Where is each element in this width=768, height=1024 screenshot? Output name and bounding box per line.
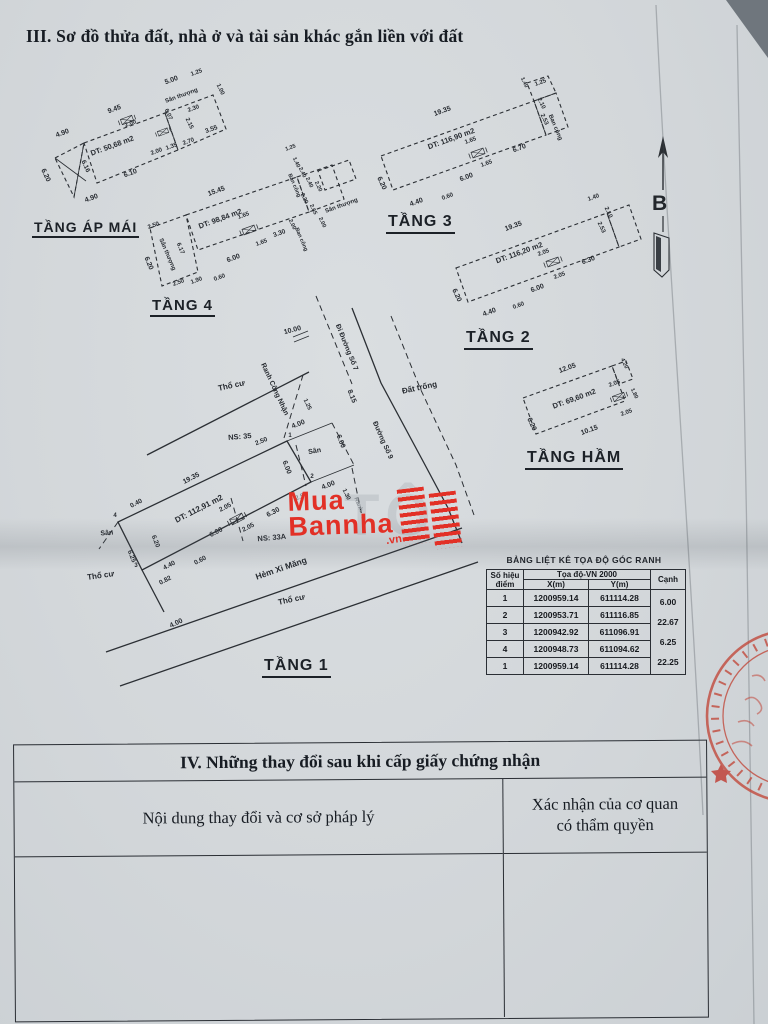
drawing-label: 6.00	[459, 172, 474, 183]
drawing-label: Thổ cư	[277, 592, 306, 606]
drawing-label: 0.60	[512, 301, 526, 311]
col-header-edge: Cạnh	[651, 570, 686, 590]
drawing-label: 0.60	[193, 554, 208, 566]
drawing-label: 2.15	[184, 117, 195, 131]
drawing-label: 0.60	[441, 192, 455, 202]
drawing-label: 5.00	[164, 75, 179, 86]
drawing-label: NS: 33A	[257, 532, 287, 544]
col-header-point: Số hiệu điểm	[487, 570, 524, 590]
drawing-label: 2.40	[304, 176, 314, 188]
drawing-label: 6.30	[266, 506, 281, 518]
coordinate-table-title: BẢNG LIỆT KÊ TỌA ĐỘ GÓC RANH	[484, 555, 684, 565]
drawing-label: 4.90	[84, 193, 99, 204]
drawing-label: 0.60	[213, 273, 227, 283]
drawing-label: 6.00	[226, 253, 241, 264]
drawing-label: 1.00	[215, 83, 226, 97]
drawing-label: 2.05	[608, 379, 622, 389]
drawing-label: 3.30	[272, 228, 287, 239]
drawing-label: Sân	[308, 447, 322, 456]
col-header-y: Y(m)	[589, 580, 651, 590]
drawing-label: 2.05	[620, 408, 634, 418]
drawing-label: Thổ cư	[217, 378, 246, 392]
drawing-label: 2.05	[241, 521, 256, 533]
drawing-label: 6.20	[150, 534, 161, 549]
coord-row: 11200959.14611114.286.0022.676.2522.25	[487, 590, 686, 607]
drawing-label: 2	[310, 474, 314, 480]
drawing-label: 1.80	[629, 387, 639, 399]
drawing-label: 6.00	[530, 283, 545, 294]
section-iv-table: IV. Những thay đổi sau khi cấp giấy chứn…	[13, 740, 709, 1023]
scanned-land-certificate-page: III. Sơ đồ thửa đất, nhà ở và tài sản kh…	[0, 0, 768, 1024]
section-iv-col-confirm: Xác nhận của cơ quan có thẩm quyền	[503, 778, 707, 854]
drawing-label: 12.05	[558, 362, 577, 375]
drawing-label: 2.00	[150, 147, 164, 157]
drawing-label: 2.50	[172, 278, 186, 288]
drawing-label: 4.00	[291, 419, 306, 431]
drawing-label: 6.30	[581, 255, 596, 266]
drawing-label: Sân	[100, 529, 113, 537]
drawing-label: 6.17	[175, 242, 185, 256]
edge-values-cell: 6.0022.676.2522.25	[651, 590, 686, 675]
drawing-label: 6.00	[335, 434, 347, 449]
drawing-label: 1.65	[255, 238, 269, 248]
drawing-label: Đất trống	[401, 379, 438, 395]
drawing-label: 6.20	[375, 176, 387, 191]
drawing-label: NS: 35	[228, 431, 252, 442]
drawing-label: Ban công	[293, 227, 308, 252]
drawing-label: Ban công	[547, 114, 563, 142]
drawing-label: 0.82	[158, 574, 173, 586]
drawing-label: 6.00	[281, 460, 293, 475]
drawing-label: 1.90	[190, 276, 204, 286]
drawing-label: 2.10	[536, 97, 547, 111]
drawing-label: 1.40	[587, 193, 601, 203]
drawing-label: DT: 112,91 m2	[173, 493, 224, 525]
drawing-label: Hẻm Xi Măng	[254, 555, 308, 582]
drawing-label: 2.50	[147, 221, 161, 231]
drawing-label: Đường Số 9	[371, 420, 395, 460]
drawing-label: 2.30	[187, 104, 201, 114]
drawing-label: Ranh Công Nhận	[259, 362, 289, 416]
drawing-label: 1	[288, 433, 292, 439]
drawing-label: 4	[113, 513, 117, 519]
section-iv-title: IV. Những thay đổi sau khi cấp giấy chứn…	[14, 741, 706, 783]
drawing-label: Thổ cư	[87, 569, 115, 582]
drawing-label: DT: 50,68 m2	[89, 134, 135, 158]
drawing-label: 2.50	[254, 436, 269, 447]
drawing-label: Sân thượng	[157, 238, 176, 272]
drawing-label: 2.05	[218, 501, 233, 513]
watermark-vn: .vn	[385, 533, 402, 547]
drawing-label: 10.15	[580, 424, 599, 437]
watermark-text: Mua Bannha	[287, 486, 394, 539]
coordinate-table: BẢNG LIỆT KÊ TỌA ĐỘ GÓC RANH Số hiệu điể…	[484, 555, 686, 675]
north-label: B	[652, 192, 667, 215]
drawing-label: 6.20	[39, 168, 51, 183]
drawing-label: 3.55	[204, 124, 219, 135]
drawing-label: 15.45	[207, 185, 226, 198]
drawing-label: 6.20	[525, 417, 537, 432]
drawing-label: 19.35	[504, 220, 523, 233]
drawing-label: 19.35	[433, 105, 452, 118]
drawing-label: 6.10	[123, 168, 138, 179]
drawing-label: 2.65	[308, 203, 318, 215]
drawing-label: Sân thượng	[325, 197, 360, 214]
drawing-label: Đi Đường Số 7	[334, 323, 360, 372]
drawing-label: 2.20	[299, 192, 309, 204]
drawing-label: 1.65	[480, 159, 494, 169]
drawing-label: DT: 98,84 m2	[197, 207, 243, 231]
drawing-label: 2.20	[313, 180, 323, 192]
drawing-label: DT: 69,60 m2	[551, 387, 597, 411]
drawing-label: 0.40	[129, 497, 144, 509]
col-header-coord: Tọa độ-VN 2000	[524, 570, 651, 580]
col-header-x: X(m)	[524, 580, 589, 590]
drawing-label: 1.25	[302, 398, 313, 412]
drawing-label: 1.25	[285, 143, 297, 152]
section-iv-col-content: Nội dung thay đổi và cơ sở pháp lý	[14, 779, 503, 857]
drawing-label: 9.45	[107, 104, 122, 115]
drawing-label: 6.20	[142, 256, 154, 271]
drawing-label: 6.25	[126, 549, 137, 564]
drawing-label: 4.40	[162, 559, 177, 571]
drawing-label: 1.40	[519, 76, 529, 88]
drawing-label: 6.20	[450, 288, 462, 303]
drawing-label: 8.15	[346, 389, 358, 404]
drawing-label: 4.90	[55, 128, 70, 139]
drawing-label: 3	[134, 563, 138, 569]
drawing-label: 6.16	[80, 159, 92, 174]
drawing-label: 2.05	[553, 271, 567, 281]
drawing-label: 4.40	[482, 307, 497, 318]
drawing-label: 6.70	[512, 143, 527, 154]
drawing-label: 2.53	[596, 221, 607, 235]
drawing-label: 2.10	[603, 206, 614, 220]
drawing-label: 1.25	[190, 68, 204, 78]
watermark-line2: Bannha	[288, 511, 394, 539]
floorplan-tang-ap-mai	[55, 95, 226, 197]
drawing-label: 4.40	[409, 197, 424, 208]
drawing-label: 2.00	[317, 216, 327, 228]
